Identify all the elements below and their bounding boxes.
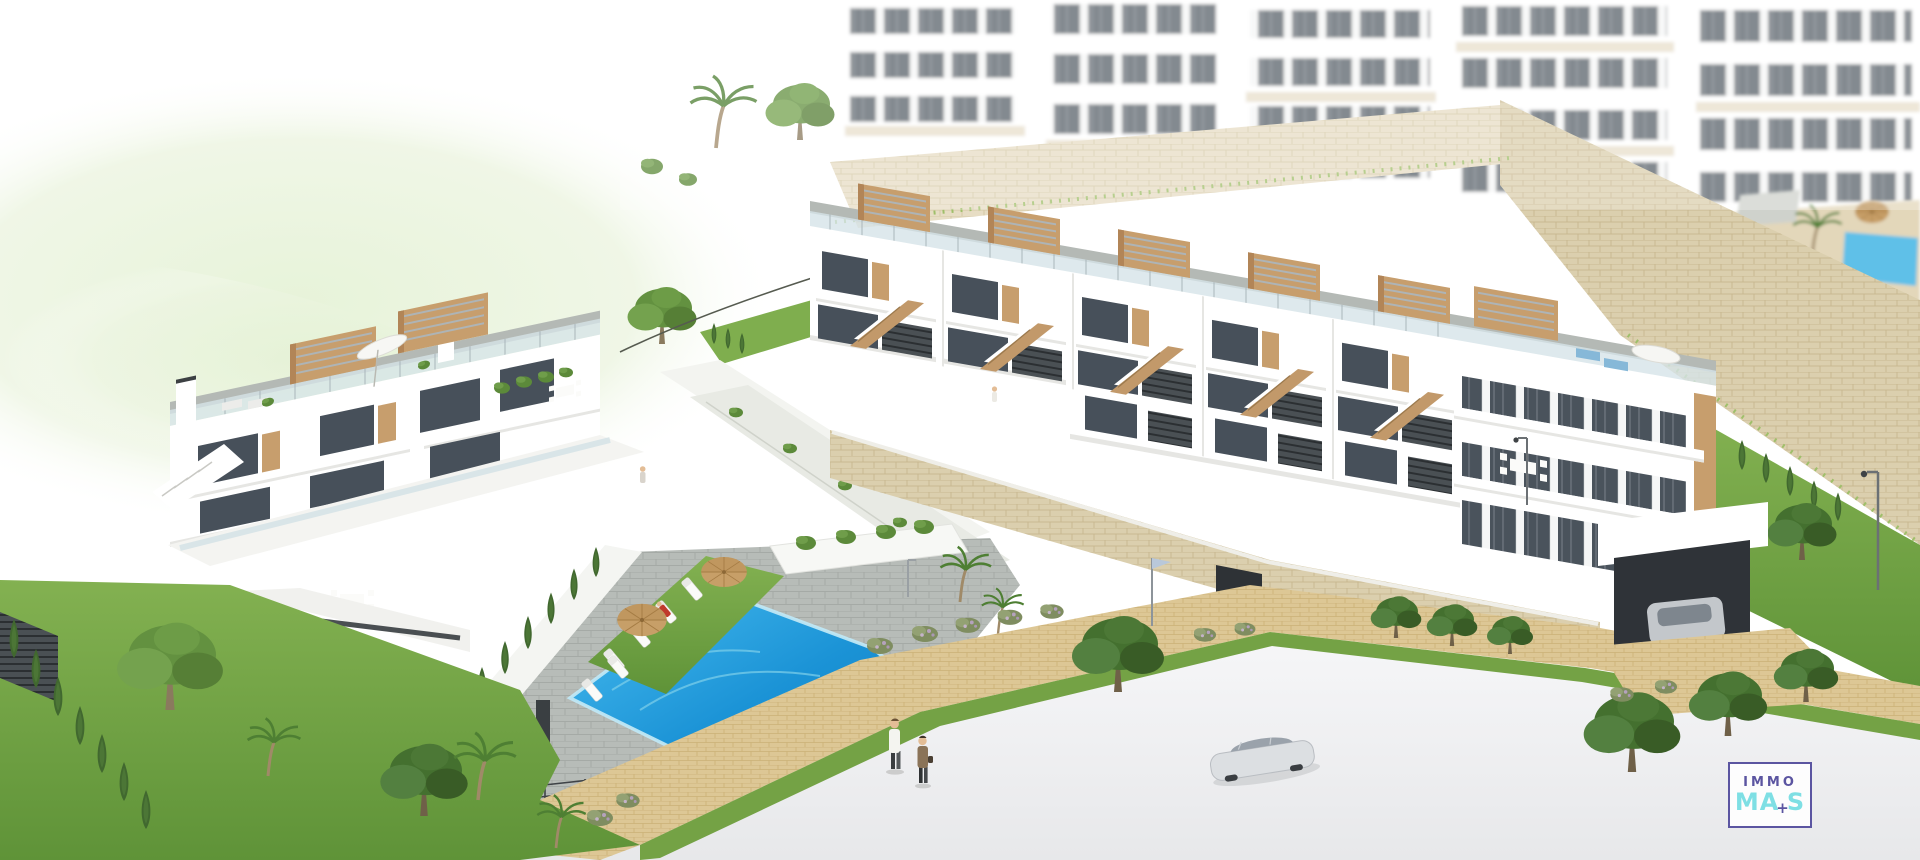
stair-person: [992, 386, 997, 402]
render-canvas: IMMO MA+S: [0, 0, 1920, 860]
logo-line2: MA+S: [1735, 790, 1805, 814]
scene-svg: [0, 0, 1920, 860]
logo-line2-ma: MA: [1735, 790, 1779, 814]
logo-plus-icon: +: [1776, 801, 1790, 816]
immomas-logo: IMMO MA+S: [1728, 762, 1812, 828]
pool-parasol-1: [617, 604, 666, 636]
terrace-person: [640, 466, 646, 483]
distance-haze: [620, 0, 1920, 210]
pool-parasol-2: [701, 557, 747, 587]
